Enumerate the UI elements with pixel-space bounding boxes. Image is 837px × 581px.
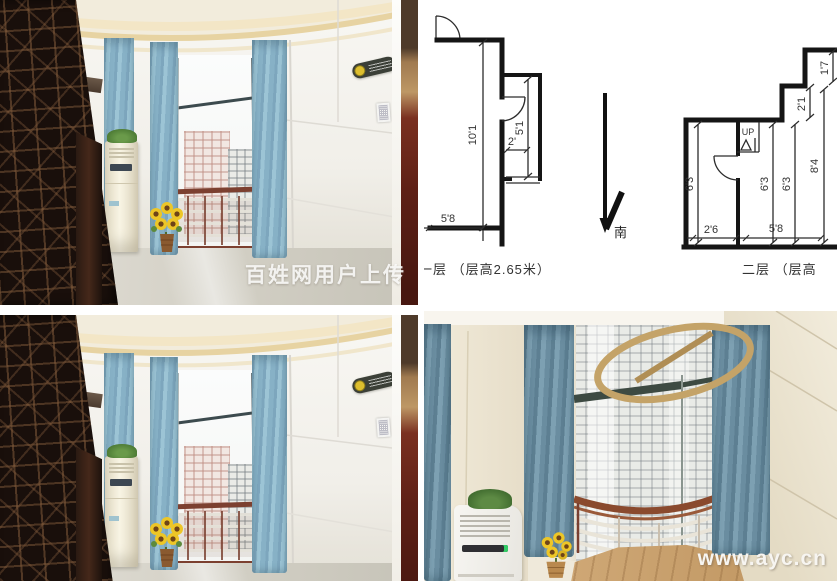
ac-vent (460, 515, 510, 537)
ac-vent (109, 148, 134, 158)
room-scene (0, 315, 418, 581)
curtain-left (524, 325, 574, 557)
dim-label: 6'3 (781, 177, 793, 191)
staircase: UP (737, 122, 759, 152)
dim-label: 1'7 (819, 61, 831, 75)
flower-vase (160, 549, 174, 567)
sunflowers-in-vase (146, 517, 188, 569)
air-conditioner (454, 505, 522, 581)
wall-corner-highlight (392, 315, 401, 581)
door-swing (502, 97, 525, 121)
flower-vase (160, 234, 174, 252)
floorplan-drawing: 10'1 5'1 2' 5'8 一层 （层高2.65米） 南 (424, 0, 837, 305)
south-arrow-icon: 南 (600, 93, 628, 240)
qr-pixels (378, 420, 388, 436)
dim-label: 5'1 (514, 121, 526, 135)
dim-label: 2'1 (796, 97, 808, 111)
dim-label: 2'6 (704, 224, 718, 236)
badge-text-lines (368, 60, 392, 72)
dim-label: 2' (508, 136, 516, 148)
ac-seam (105, 183, 138, 184)
dim-label: 6'3 (684, 177, 696, 191)
ac-control-panel (110, 164, 132, 171)
curtain-far-left (424, 324, 451, 581)
dim-label: 10'1 (467, 125, 479, 145)
ac-seam (105, 498, 138, 499)
badge-logo-icon (353, 64, 366, 77)
photo-room-first-floor: 百姓网用户上传 (0, 0, 418, 305)
stair-banister (76, 132, 102, 305)
ac-control-panel (462, 545, 508, 552)
badge-text-lines (368, 375, 392, 387)
photo-room-duplicate (0, 311, 418, 581)
ac-vent (109, 463, 134, 473)
stair-up-label: UP (742, 127, 755, 137)
photo-room-loft-view: www.ayc.cn (424, 311, 837, 581)
sunflower-blooms (542, 532, 572, 560)
dim-label: 5'8 (769, 223, 783, 235)
door-swing (714, 156, 738, 180)
first-floor-caption: 一层 （层高2.65米） (424, 262, 551, 277)
watermark-ayc: www.ayc.cn (698, 547, 827, 571)
badge-logo-icon (353, 379, 366, 392)
ring-chandelier (582, 315, 766, 411)
sunflower-blooms (150, 202, 183, 232)
railing-top-rail (170, 186, 258, 194)
second-floor-plan: UP 6'3 6'3 6'3 8'4 2'1 (684, 48, 837, 277)
plant-on-ac (468, 489, 512, 509)
sunflowers-in-vase (146, 202, 188, 254)
ac-label-sticker (109, 201, 119, 206)
door-swing (436, 16, 460, 40)
dark-wardrobe-edge (401, 315, 418, 581)
second-floor-caption: 二层 （层高 (742, 262, 817, 277)
qr-code-sticker (376, 418, 390, 438)
ac-base (458, 574, 514, 577)
qr-pixels (378, 105, 388, 121)
curtain-right (252, 40, 287, 258)
flower-basket (546, 562, 565, 578)
watermark-baixing: 百姓网用户上传 (245, 259, 406, 289)
curtain-right (252, 355, 287, 573)
south-label: 南 (614, 225, 627, 240)
air-conditioner (105, 456, 138, 567)
air-conditioner (105, 141, 138, 252)
ac-label-sticker (109, 516, 119, 521)
qr-code-sticker (376, 103, 390, 123)
floorplan-panel: 10'1 5'1 2' 5'8 一层 （层高2.65米） 南 (424, 0, 837, 305)
dim-label: 6'3 (759, 177, 771, 191)
railing-top-rail (170, 501, 258, 509)
first-floor-plan: 10'1 5'1 2' 5'8 一层 （层高2.65米） (424, 16, 551, 277)
plant-on-ac (107, 444, 137, 458)
sunflower-blooms (150, 517, 183, 547)
plant-on-ac (107, 129, 137, 143)
ac-control-panel (110, 479, 132, 486)
listing-photo-collage: 百姓网用户上传 10'1 5'1 2' (0, 0, 837, 581)
dim-label: 5'8 (441, 213, 455, 225)
sunflowers-in-basket (536, 531, 576, 581)
stair-banister (76, 447, 102, 581)
dim-label: 8'4 (809, 159, 821, 173)
